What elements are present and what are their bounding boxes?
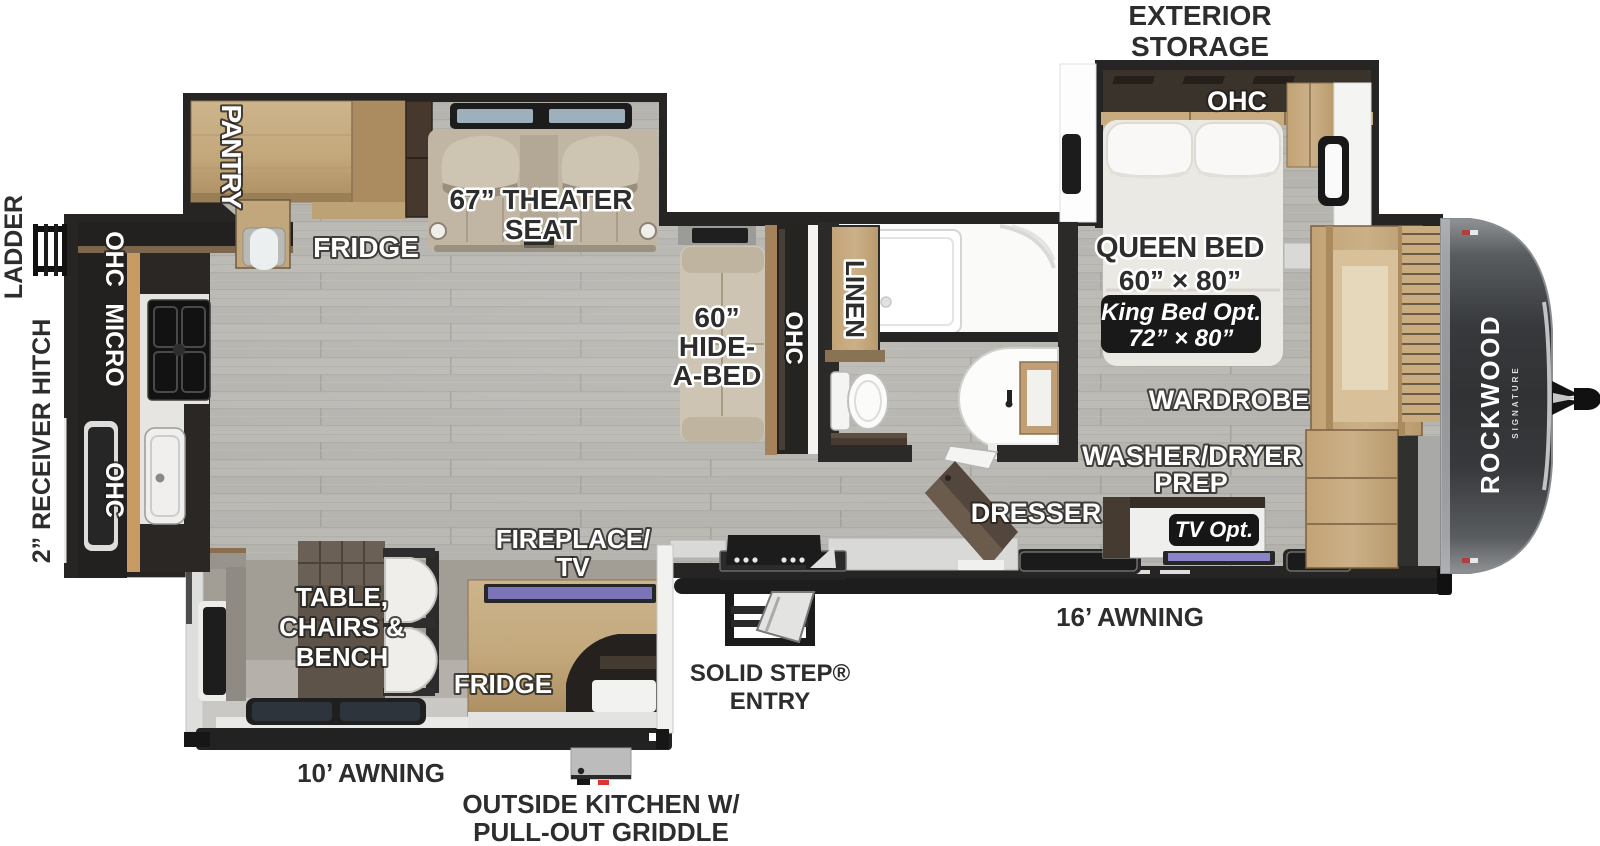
svg-text:PULL-OUT GRIDDLE: PULL-OUT GRIDDLE (473, 817, 729, 846)
svg-text:LADDER: LADDER (0, 195, 28, 299)
svg-text:SIGNATURE: SIGNATURE (1511, 365, 1520, 439)
svg-text:WASHER/DRYER: WASHER/DRYER (1082, 441, 1302, 471)
svg-text:STORAGE: STORAGE (1131, 31, 1269, 62)
svg-text:HIDE-: HIDE- (679, 331, 755, 362)
svg-text:BENCH: BENCH (296, 642, 388, 672)
svg-text:King Bed Opt.: King Bed Opt. (1101, 299, 1261, 326)
svg-text:2” RECEIVER HITCH: 2” RECEIVER HITCH (28, 319, 56, 563)
svg-text:16’ AWNING: 16’ AWNING (1056, 602, 1204, 632)
svg-text:FIREPLACE/: FIREPLACE/ (496, 524, 651, 554)
svg-text:60”: 60” (694, 302, 739, 333)
svg-text:TV Opt.: TV Opt. (1175, 517, 1253, 542)
svg-text:SOLID STEP®: SOLID STEP® (690, 660, 851, 687)
svg-text:SEAT: SEAT (505, 214, 578, 245)
svg-text:67” THEATER: 67” THEATER (449, 184, 632, 215)
svg-text:QUEEN BED: QUEEN BED (1096, 232, 1264, 264)
svg-text:ENTRY: ENTRY (730, 688, 810, 715)
svg-text:PREP: PREP (1154, 468, 1228, 498)
svg-text:OHC: OHC (100, 462, 128, 518)
svg-text:LINEN: LINEN (840, 260, 870, 338)
svg-text:CHAIRS &: CHAIRS & (279, 612, 405, 642)
svg-text:OHC: OHC (100, 231, 128, 287)
svg-text:TV: TV (556, 552, 590, 582)
svg-text:OUTSIDE KITCHEN W/: OUTSIDE KITCHEN W/ (462, 789, 739, 819)
svg-text:FRIDGE: FRIDGE (313, 232, 419, 263)
svg-text:TABLE,: TABLE, (296, 582, 388, 612)
svg-text:FRIDGE: FRIDGE (454, 669, 552, 699)
svg-text:OHC: OHC (1207, 86, 1267, 116)
svg-text:60” × 80”: 60” × 80” (1119, 265, 1241, 296)
svg-text:A-BED: A-BED (673, 360, 762, 391)
svg-text:EXTERIOR: EXTERIOR (1128, 0, 1271, 31)
svg-text:PANTRY: PANTRY (216, 105, 247, 210)
svg-text:OHC: OHC (780, 311, 807, 364)
svg-text:10’ AWNING: 10’ AWNING (297, 758, 445, 788)
svg-text:DRESSER: DRESSER (971, 498, 1102, 528)
svg-text:ROCKWOOD: ROCKWOOD (1475, 314, 1505, 494)
svg-text:WARDROBE: WARDROBE (1149, 385, 1310, 415)
svg-text:MICRO: MICRO (100, 303, 128, 386)
svg-text:72” × 80”: 72” × 80” (1129, 325, 1234, 352)
